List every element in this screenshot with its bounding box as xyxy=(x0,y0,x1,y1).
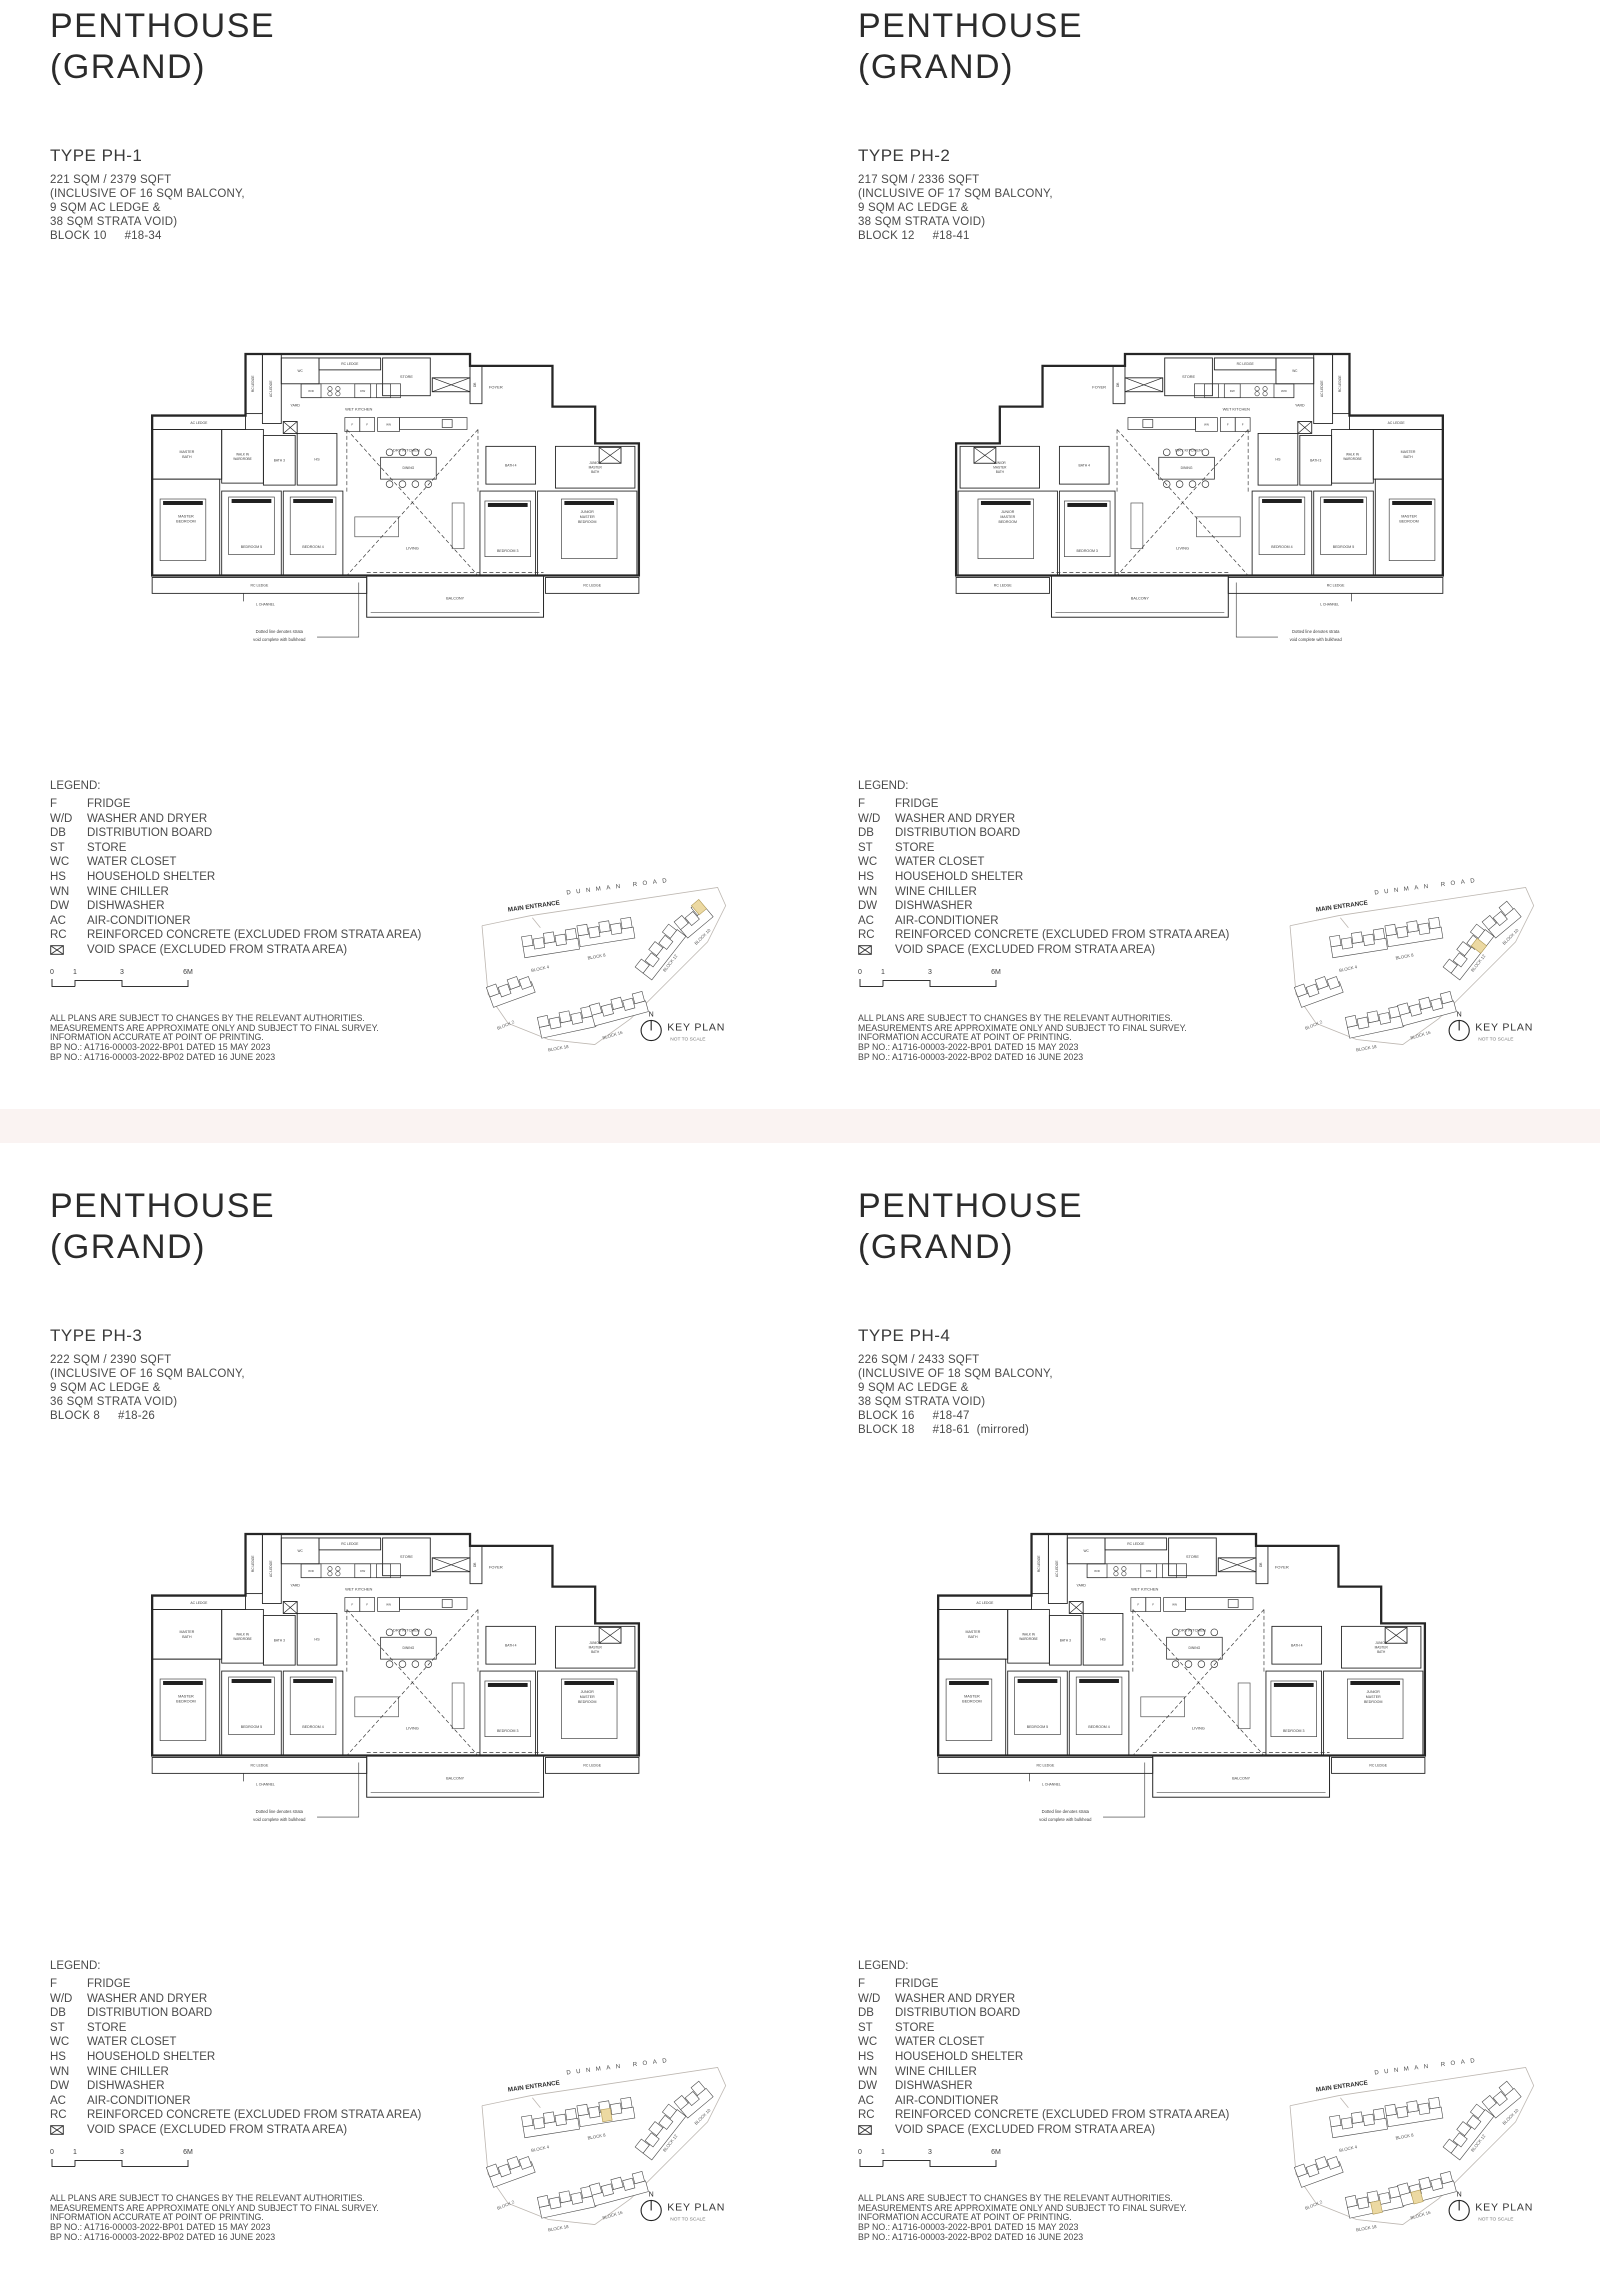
legend-item: STSTORE xyxy=(858,841,1229,856)
svg-text:DRY KITCHEN: DRY KITCHEN xyxy=(1175,447,1202,452)
svg-text:WN: WN xyxy=(386,423,391,427)
unit-number: #18-34 xyxy=(125,229,162,243)
svg-text:BEDROOM 5: BEDROOM 5 xyxy=(1333,545,1354,549)
svg-text:F: F xyxy=(351,1603,353,1607)
svg-text:BLOCK 18: BLOCK 18 xyxy=(548,2224,570,2233)
svg-text:STORE: STORE xyxy=(1186,1555,1199,1559)
svg-text:STORE: STORE xyxy=(1182,375,1195,379)
legend-abbr: DB xyxy=(858,2006,895,2021)
svg-text:AC LEDGE: AC LEDGE xyxy=(976,1601,994,1605)
legend-abbr: WC xyxy=(858,2035,895,2050)
unit-inclusive-line: 36 SQM STRATA VOID) xyxy=(50,1395,245,1409)
svg-text:YARD: YARD xyxy=(1076,1584,1086,1588)
legend-item: VOID SPACE (EXCLUDED FROM STRATA AREA) xyxy=(50,2123,421,2138)
svg-text:KEY PLAN: KEY PLAN xyxy=(667,1021,725,1033)
disclaimer: ALL PLANS ARE SUBJECT TO CHANGES BY THE … xyxy=(858,1014,1187,1063)
svg-text:YARD: YARD xyxy=(290,1584,300,1588)
legend-item: VOID SPACE (EXCLUDED FROM STRATA AREA) xyxy=(858,943,1229,958)
legend-desc: VOID SPACE (EXCLUDED FROM STRATA AREA) xyxy=(895,943,1155,958)
svg-text:DW: DW xyxy=(360,389,365,393)
svg-text:BALCONY: BALCONY xyxy=(1131,596,1149,600)
legend-item: WNWINE CHILLER xyxy=(50,885,421,900)
legend-abbr: WC xyxy=(50,2035,87,2050)
svg-text:RC LEDGE: RC LEDGE xyxy=(341,1542,359,1546)
svg-text:N: N xyxy=(1457,1011,1462,1018)
legend-abbr: AC xyxy=(50,2094,87,2109)
svg-text:AC LEDGE: AC LEDGE xyxy=(190,421,208,425)
title-line2: (GRAND) xyxy=(50,48,206,86)
svg-text:1: 1 xyxy=(73,2149,77,2156)
scale-bar: 0136M xyxy=(858,2146,1008,2172)
svg-text:0: 0 xyxy=(50,2149,54,2156)
legend-abbr: F xyxy=(858,1977,895,1992)
svg-text:MASTERBEDROOM: MASTERBEDROOM xyxy=(176,1695,195,1704)
legend-desc: AIR-CONDITIONER xyxy=(87,2094,191,2109)
legend-abbr: F xyxy=(50,797,87,812)
legend-item: ACAIR-CONDITIONER xyxy=(858,2094,1229,2109)
svg-text:BEDROOM 4: BEDROOM 4 xyxy=(302,545,323,549)
svg-text:F: F xyxy=(1242,423,1244,427)
legend-item: VOID SPACE (EXCLUDED FROM STRATA AREA) xyxy=(50,943,421,958)
svg-text:1: 1 xyxy=(881,969,885,976)
svg-text:BEDROOM 3: BEDROOM 3 xyxy=(497,1729,518,1733)
legend-item: ACAIR-CONDITIONER xyxy=(858,914,1229,929)
legend-item: HSHOUSEHOLD SHELTER xyxy=(858,2050,1229,2065)
legend-desc: REINFORCED CONCRETE (EXCLUDED FROM STRAT… xyxy=(895,2108,1229,2123)
svg-text:FOYER: FOYER xyxy=(489,1565,503,1570)
svg-text:WN: WN xyxy=(1172,1603,1177,1607)
legend-item: RCREINFORCED CONCRETE (EXCLUDED FROM STR… xyxy=(858,2108,1229,2123)
svg-text:BEDROOM 3: BEDROOM 3 xyxy=(497,549,518,553)
svg-text:3: 3 xyxy=(120,969,124,976)
legend-abbr: F xyxy=(858,797,895,812)
svg-text:0: 0 xyxy=(858,2149,862,2156)
legend-desc: DISTRIBUTION BOARD xyxy=(87,2006,212,2021)
title-line1: PENTHOUSE xyxy=(50,1187,275,1225)
svg-text:BLOCK 4: BLOCK 4 xyxy=(1339,964,1358,973)
unit-panel-ph4: PENTHOUSE(GRAND) TYPE PH-4 226 SQM / 243… xyxy=(808,1180,1600,2269)
scale-bar: 0136M xyxy=(858,966,1008,992)
svg-text:FOYER: FOYER xyxy=(489,385,503,390)
svg-text:WN: WN xyxy=(386,1603,391,1607)
legend-abbr: AC xyxy=(50,914,87,929)
legend-abbr xyxy=(50,945,87,955)
legend-item: WCWATER CLOSET xyxy=(50,855,421,870)
void-space-icon xyxy=(858,945,872,955)
block-number: BLOCK 10 xyxy=(50,229,107,243)
key-plan: MAIN ENTRANCEDUNMAN ROADBLOCK 4BLOCK 8BL… xyxy=(1288,845,1580,1077)
unit-block-line: BLOCK 8#18-26 xyxy=(50,1409,245,1423)
legend-abbr: DB xyxy=(50,2006,87,2021)
svg-text:BEDROOM 4: BEDROOM 4 xyxy=(302,1725,323,1729)
legend-heading: LEGEND: xyxy=(858,1959,1229,1974)
svg-text:DINING: DINING xyxy=(1189,1646,1201,1650)
legend-rows: FFRIDGEW/DWASHER AND DRYERDBDISTRIBUTION… xyxy=(50,797,421,958)
svg-text:BATH 3: BATH 3 xyxy=(1310,459,1321,463)
svg-text:YARD: YARD xyxy=(290,404,300,408)
legend-abbr: HS xyxy=(50,870,87,885)
svg-text:JUNIORMASTERBEDROOM: JUNIORMASTERBEDROOM xyxy=(1364,1690,1382,1704)
unit-panel-ph2: PENTHOUSE(GRAND) TYPE PH-2 217 SQM / 233… xyxy=(808,0,1600,1089)
legend-item: WNWINE CHILLER xyxy=(858,2065,1229,2080)
legend-desc: FRIDGE xyxy=(895,1977,938,1992)
scale-bar: 0136M xyxy=(50,966,200,992)
svg-text:WC: WC xyxy=(1084,1549,1090,1553)
unit-block-line: BLOCK 10#18-34 xyxy=(50,229,245,243)
svg-text:NOT TO SCALE: NOT TO SCALE xyxy=(1478,1037,1514,1043)
svg-text:L CHANNEL: L CHANNEL xyxy=(256,1782,275,1786)
unit-inclusive-lines: (INCLUSIVE OF 17 SQM BALCONY,9 SQM AC LE… xyxy=(858,187,1053,229)
svg-text:0: 0 xyxy=(50,969,54,976)
legend-item: STSTORE xyxy=(50,841,421,856)
legend-desc: STORE xyxy=(895,841,934,856)
svg-text:DRY KITCHEN: DRY KITCHEN xyxy=(393,1627,420,1632)
svg-text:MASTERBEDROOM: MASTERBEDROOM xyxy=(176,515,195,524)
svg-text:BEDROOM 4: BEDROOM 4 xyxy=(1088,1725,1109,1729)
legend-abbr: HS xyxy=(858,2050,895,2065)
unit-panel-ph1: PENTHOUSE(GRAND) TYPE PH-1 221 SQM / 237… xyxy=(0,0,808,1089)
unit-blocks: BLOCK 10#18-34 xyxy=(50,229,245,243)
legend-abbr: DW xyxy=(50,2079,87,2094)
disclaimer-line: BP NO.: A1716-00003-2022-BP02 DATED 16 J… xyxy=(858,1053,1187,1063)
legend-desc: AIR-CONDITIONER xyxy=(87,914,191,929)
svg-text:BALCONY: BALCONY xyxy=(446,596,464,600)
disclaimer-line: BP NO.: A1716-00003-2022-BP02 DATED 16 J… xyxy=(50,2233,379,2243)
svg-text:void complete with bulkhead: void complete with bulkhead xyxy=(1039,1817,1092,1822)
disclaimer-line: BP NO.: A1716-00003-2022-BP02 DATED 16 J… xyxy=(50,1053,379,1063)
svg-text:AC LEDGE: AC LEDGE xyxy=(1055,1560,1059,1577)
svg-text:BLOCK 18: BLOCK 18 xyxy=(548,1044,570,1053)
legend-desc: WASHER AND DRYER xyxy=(895,812,1015,827)
svg-text:F: F xyxy=(366,1603,368,1607)
legend-item: DBDISTRIBUTION BOARD xyxy=(50,2006,421,2021)
svg-text:JUNIORMASTERBEDROOM: JUNIORMASTERBEDROOM xyxy=(578,510,596,524)
floor-plan: RC LEDGERC LEDGEBALCONYRC LEDGEAC LEDGED… xyxy=(936,1532,1433,1830)
legend-item: WCWATER CLOSET xyxy=(50,2035,421,2050)
svg-text:DB: DB xyxy=(1259,1563,1263,1568)
legend-abbr xyxy=(858,2125,895,2135)
svg-text:F: F xyxy=(1227,423,1229,427)
legend-abbr: HS xyxy=(50,2050,87,2065)
legend-abbr: DW xyxy=(858,2079,895,2094)
legend-abbr: WN xyxy=(858,2065,895,2080)
svg-text:DUNMAN ROAD: DUNMAN ROAD xyxy=(1374,878,1480,897)
legend-desc: WATER CLOSET xyxy=(895,2035,984,2050)
svg-text:NOT TO SCALE: NOT TO SCALE xyxy=(670,1037,706,1043)
block-number: BLOCK 18 xyxy=(858,1423,915,1437)
unit-info: TYPE PH-2 217 SQM / 2336 SQFT (INCLUSIVE… xyxy=(858,146,1053,243)
svg-text:MAIN ENTRANCE: MAIN ENTRANCE xyxy=(1315,899,1368,913)
svg-text:W/D: W/D xyxy=(308,389,314,393)
legend-item: FFRIDGE xyxy=(50,797,421,812)
svg-text:JUNIORMASTERBEDROOM: JUNIORMASTERBEDROOM xyxy=(578,1690,596,1704)
svg-text:W/D: W/D xyxy=(1281,389,1287,393)
svg-text:BLOCK 8: BLOCK 8 xyxy=(1395,2132,1414,2140)
unit-inclusive-line: 38 SQM STRATA VOID) xyxy=(50,215,245,229)
legend-item: W/DWASHER AND DRYER xyxy=(50,1992,421,2007)
legend-heading: LEGEND: xyxy=(50,779,421,794)
svg-text:AC LEDGE: AC LEDGE xyxy=(190,1601,208,1605)
legend-item: W/DWASHER AND DRYER xyxy=(858,1992,1229,2007)
legend-desc: DISHWASHER xyxy=(895,899,973,914)
legend-desc: AIR-CONDITIONER xyxy=(895,2094,999,2109)
svg-text:BEDROOM 5: BEDROOM 5 xyxy=(241,545,262,549)
svg-text:N: N xyxy=(1457,2191,1462,2198)
legend-abbr xyxy=(858,945,895,955)
svg-text:DINING: DINING xyxy=(403,466,415,470)
svg-text:BLOCK 8: BLOCK 8 xyxy=(587,2132,606,2140)
svg-text:1: 1 xyxy=(73,969,77,976)
legend-desc: DISTRIBUTION BOARD xyxy=(895,2006,1020,2021)
svg-text:HS: HS xyxy=(1100,1638,1106,1642)
unit-info: TYPE PH-3 222 SQM / 2390 SQFT (INCLUSIVE… xyxy=(50,1326,245,1423)
svg-text:F: F xyxy=(351,423,353,427)
svg-text:WET KITCHEN: WET KITCHEN xyxy=(345,407,372,412)
svg-text:MAIN ENTRANCE: MAIN ENTRANCE xyxy=(507,899,560,913)
svg-text:BATH 4: BATH 4 xyxy=(505,1644,517,1648)
svg-text:MASTERBEDROOM: MASTERBEDROOM xyxy=(962,1695,981,1704)
unit-inclusive-lines: (INCLUSIVE OF 18 SQM BALCONY,9 SQM AC LE… xyxy=(858,1367,1053,1409)
svg-text:6M: 6M xyxy=(991,2149,1001,2156)
unit-area: 222 SQM / 2390 SQFT xyxy=(50,1353,245,1367)
svg-text:DUNMAN ROAD: DUNMAN ROAD xyxy=(566,878,672,897)
svg-text:BATH 4: BATH 4 xyxy=(505,464,517,468)
legend-abbr: W/D xyxy=(50,812,87,827)
legend-item: WCWATER CLOSET xyxy=(858,855,1229,870)
svg-text:L CHANNEL: L CHANNEL xyxy=(256,602,275,606)
block-note: (mirrored) xyxy=(977,1423,1029,1437)
legend-desc: WATER CLOSET xyxy=(87,855,176,870)
block-number: BLOCK 16 xyxy=(858,1409,915,1423)
svg-text:DB: DB xyxy=(473,383,477,388)
legend-abbr: ST xyxy=(50,2021,87,2036)
svg-text:NOT TO SCALE: NOT TO SCALE xyxy=(670,2217,706,2223)
svg-text:MASTERBEDROOM: MASTERBEDROOM xyxy=(1399,515,1418,524)
unit-type: TYPE PH-4 xyxy=(858,1326,1053,1346)
legend-item: FFRIDGE xyxy=(858,797,1229,812)
svg-text:HS: HS xyxy=(314,1638,320,1642)
svg-text:AC LEDGE: AC LEDGE xyxy=(1388,421,1406,425)
legend-desc: WASHER AND DRYER xyxy=(895,1992,1015,2007)
svg-text:1: 1 xyxy=(881,2149,885,2156)
svg-text:3: 3 xyxy=(928,2149,932,2156)
legend-item: DBDISTRIBUTION BOARD xyxy=(50,826,421,841)
page-title: PENTHOUSE(GRAND) xyxy=(858,1186,1083,1268)
legend-item: WNWINE CHILLER xyxy=(858,885,1229,900)
svg-text:BLOCK 4: BLOCK 4 xyxy=(1339,2144,1358,2153)
svg-text:KEY PLAN: KEY PLAN xyxy=(1475,2201,1533,2213)
svg-text:Dotted line denotes strata: Dotted line denotes strata xyxy=(1292,629,1340,634)
unit-inclusive-line: 9 SQM AC LEDGE & xyxy=(50,201,245,215)
floorplan-brochure-page: { "page":{"background":"#ffffff","divide… xyxy=(0,0,1600,2269)
svg-text:MAIN ENTRANCE: MAIN ENTRANCE xyxy=(507,2079,560,2093)
svg-text:DRY KITCHEN: DRY KITCHEN xyxy=(1179,1627,1206,1632)
svg-text:BATH 3: BATH 3 xyxy=(1060,1639,1071,1643)
legend-abbr: W/D xyxy=(858,1992,895,2007)
unit-blocks: BLOCK 16#18-47BLOCK 18#18-61(mirrored) xyxy=(858,1409,1053,1437)
unit-block-line: BLOCK 18#18-61(mirrored) xyxy=(858,1423,1053,1437)
legend-abbr: WN xyxy=(50,2065,87,2080)
legend: LEGEND: FFRIDGEW/DWASHER AND DRYERDBDIST… xyxy=(858,1959,1229,2138)
svg-text:NOT TO SCALE: NOT TO SCALE xyxy=(1478,2217,1514,2223)
legend-desc: STORE xyxy=(895,2021,934,2036)
legend-item: DBDISTRIBUTION BOARD xyxy=(858,826,1229,841)
svg-text:void complete with bulkhead: void complete with bulkhead xyxy=(253,637,306,642)
svg-text:WET KITCHEN: WET KITCHEN xyxy=(1223,407,1250,412)
unit-info: TYPE PH-4 226 SQM / 2433 SQFT (INCLUSIVE… xyxy=(858,1326,1053,1437)
legend-desc: VOID SPACE (EXCLUDED FROM STRATA AREA) xyxy=(895,2123,1155,2138)
unit-inclusive-line: (INCLUSIVE OF 17 SQM BALCONY, xyxy=(858,187,1053,201)
svg-text:Dotted line denotes strata: Dotted line denotes strata xyxy=(256,629,304,634)
svg-text:BATH 3: BATH 3 xyxy=(274,1639,285,1643)
block-number: BLOCK 8 xyxy=(50,1409,100,1423)
key-plan: MAIN ENTRANCEDUNMAN ROADBLOCK 4BLOCK 8BL… xyxy=(480,845,772,1077)
unit-block-line: BLOCK 12#18-41 xyxy=(858,229,1053,243)
svg-text:void complete with bulkhead: void complete with bulkhead xyxy=(253,1817,306,1822)
title-line1: PENTHOUSE xyxy=(858,7,1083,45)
legend-desc: WINE CHILLER xyxy=(895,885,977,900)
svg-text:LIVING: LIVING xyxy=(406,1726,419,1731)
svg-text:L CHANNEL: L CHANNEL xyxy=(1320,602,1339,606)
unit-info: TYPE PH-1 221 SQM / 2379 SQFT (INCLUSIVE… xyxy=(50,146,245,243)
svg-text:BEDROOM 3: BEDROOM 3 xyxy=(1283,1729,1304,1733)
svg-text:BLOCK 18: BLOCK 18 xyxy=(1356,2224,1378,2233)
disclaimer-line: BP NO.: A1716-00003-2022-BP02 DATED 16 J… xyxy=(858,2233,1187,2243)
unit-blocks: BLOCK 12#18-41 xyxy=(858,229,1053,243)
legend-item: RCREINFORCED CONCRETE (EXCLUDED FROM STR… xyxy=(50,2108,421,2123)
legend-item: WNWINE CHILLER xyxy=(50,2065,421,2080)
title-line2: (GRAND) xyxy=(50,1228,206,1266)
legend-item: ACAIR-CONDITIONER xyxy=(50,914,421,929)
legend-desc: WATER CLOSET xyxy=(87,2035,176,2050)
legend-abbr: ST xyxy=(858,2021,895,2036)
unit-number: #18-47 xyxy=(933,1409,970,1423)
unit-number: #18-41 xyxy=(933,229,970,243)
legend-rows: FFRIDGEW/DWASHER AND DRYERDBDISTRIBUTION… xyxy=(50,1977,421,2138)
svg-text:DW: DW xyxy=(360,1569,365,1573)
legend-abbr: RC xyxy=(858,928,895,943)
unit-inclusive-lines: (INCLUSIVE OF 16 SQM BALCONY,9 SQM AC LE… xyxy=(50,187,245,229)
void-space-icon xyxy=(50,2125,64,2135)
legend-abbr: HS xyxy=(858,870,895,885)
svg-text:RC LEDGE: RC LEDGE xyxy=(1037,1764,1055,1768)
svg-text:RC LEDGE: RC LEDGE xyxy=(1327,584,1345,588)
unit-inclusive-line: (INCLUSIVE OF 18 SQM BALCONY, xyxy=(858,1367,1053,1381)
svg-text:WC: WC xyxy=(298,1549,304,1553)
title-line1: PENTHOUSE xyxy=(50,7,275,45)
svg-text:DB: DB xyxy=(1116,383,1120,388)
legend-rows: FFRIDGEW/DWASHER AND DRYERDBDISTRIBUTION… xyxy=(858,1977,1229,2138)
legend-abbr: DW xyxy=(50,899,87,914)
legend-item: W/DWASHER AND DRYER xyxy=(50,812,421,827)
floor-plan: RC LEDGERC LEDGEBALCONYRC LEDGEAC LEDGED… xyxy=(150,1532,647,1830)
page-title: PENTHOUSE(GRAND) xyxy=(50,1186,275,1268)
legend-heading: LEGEND: xyxy=(50,1959,421,1974)
svg-text:F: F xyxy=(1137,1603,1139,1607)
svg-text:BATH 4: BATH 4 xyxy=(1078,464,1090,468)
legend-desc: REINFORCED CONCRETE (EXCLUDED FROM STRAT… xyxy=(895,928,1229,943)
legend-desc: FRIDGE xyxy=(87,1977,130,1992)
svg-text:RC LEDGE: RC LEDGE xyxy=(1127,1542,1145,1546)
floor-plan: RC LEDGERC LEDGEBALCONYRC LEDGEAC LEDGED… xyxy=(948,352,1445,650)
svg-text:DW: DW xyxy=(1230,389,1235,393)
svg-text:AC LEDGE: AC LEDGE xyxy=(1320,380,1324,397)
unit-inclusive-line: 9 SQM AC LEDGE & xyxy=(50,1381,245,1395)
svg-text:BLOCK 4: BLOCK 4 xyxy=(531,2144,550,2153)
svg-text:STORE: STORE xyxy=(400,1555,413,1559)
unit-number: #18-26 xyxy=(118,1409,155,1423)
svg-text:HS: HS xyxy=(1275,458,1281,462)
svg-text:BATH 3: BATH 3 xyxy=(274,459,285,463)
svg-text:BALCONY: BALCONY xyxy=(446,1776,464,1780)
svg-text:WN: WN xyxy=(1204,423,1209,427)
legend-abbr: DW xyxy=(858,899,895,914)
svg-text:BEDROOM 3: BEDROOM 3 xyxy=(1077,549,1098,553)
void-space-icon xyxy=(858,2125,872,2135)
unit-blocks: BLOCK 8#18-26 xyxy=(50,1409,245,1423)
legend-abbr: F xyxy=(50,1977,87,1992)
unit-type: TYPE PH-2 xyxy=(858,146,1053,166)
unit-inclusive-line: 9 SQM AC LEDGE & xyxy=(858,1381,1053,1395)
legend: LEGEND: FFRIDGEW/DWASHER AND DRYERDBDIST… xyxy=(50,1959,421,2138)
svg-text:STORE: STORE xyxy=(400,375,413,379)
svg-text:void complete with bulkhead: void complete with bulkhead xyxy=(1290,637,1343,642)
legend-item: DWDISHWASHER xyxy=(858,899,1229,914)
legend-desc: STORE xyxy=(87,841,126,856)
svg-text:N: N xyxy=(649,1011,654,1018)
disclaimer: ALL PLANS ARE SUBJECT TO CHANGES BY THE … xyxy=(858,2194,1187,2243)
page-title: PENTHOUSE(GRAND) xyxy=(858,6,1083,88)
unit-inclusive-lines: (INCLUSIVE OF 16 SQM BALCONY,9 SQM AC LE… xyxy=(50,1367,245,1409)
legend-item: STSTORE xyxy=(858,2021,1229,2036)
legend-abbr: WN xyxy=(858,885,895,900)
unit-block-line: BLOCK 16#18-47 xyxy=(858,1409,1053,1423)
legend-desc: REINFORCED CONCRETE (EXCLUDED FROM STRAT… xyxy=(87,2108,421,2123)
unit-area: 226 SQM / 2433 SQFT xyxy=(858,1353,1053,1367)
svg-text:WC: WC xyxy=(1292,369,1298,373)
legend-item: ACAIR-CONDITIONER xyxy=(50,2094,421,2109)
legend-abbr: RC xyxy=(858,2108,895,2123)
svg-text:LIVING: LIVING xyxy=(1192,1726,1205,1731)
legend-abbr: W/D xyxy=(858,812,895,827)
svg-text:FOYER: FOYER xyxy=(1092,385,1106,390)
legend-item: W/DWASHER AND DRYER xyxy=(858,812,1229,827)
legend-abbr: AC xyxy=(858,2094,895,2109)
legend-item: HSHOUSEHOLD SHELTER xyxy=(50,2050,421,2065)
svg-text:BALCONY: BALCONY xyxy=(1232,1776,1250,1780)
unit-inclusive-line: 9 SQM AC LEDGE & xyxy=(858,201,1053,215)
svg-text:KEY PLAN: KEY PLAN xyxy=(667,2201,725,2213)
svg-text:RC LEDGE: RC LEDGE xyxy=(583,1764,601,1768)
svg-text:0: 0 xyxy=(858,969,862,976)
legend-abbr: ST xyxy=(50,841,87,856)
svg-text:BEDROOM 5: BEDROOM 5 xyxy=(1027,1725,1048,1729)
svg-text:FOYER: FOYER xyxy=(1275,1565,1289,1570)
legend-desc: HOUSEHOLD SHELTER xyxy=(87,2050,215,2065)
svg-text:RC LEDGE: RC LEDGE xyxy=(251,1555,255,1573)
svg-text:F: F xyxy=(366,423,368,427)
legend-item: RCREINFORCED CONCRETE (EXCLUDED FROM STR… xyxy=(858,928,1229,943)
legend-abbr: WC xyxy=(858,855,895,870)
svg-text:DINING: DINING xyxy=(403,1646,415,1650)
svg-text:WET KITCHEN: WET KITCHEN xyxy=(1131,1587,1158,1592)
svg-text:RC LEDGE: RC LEDGE xyxy=(251,375,255,393)
legend-item: STSTORE xyxy=(50,2021,421,2036)
svg-text:HS: HS xyxy=(314,458,320,462)
legend-desc: AIR-CONDITIONER xyxy=(895,914,999,929)
legend-item: DBDISTRIBUTION BOARD xyxy=(858,2006,1229,2021)
unit-area: 217 SQM / 2336 SQFT xyxy=(858,173,1053,187)
